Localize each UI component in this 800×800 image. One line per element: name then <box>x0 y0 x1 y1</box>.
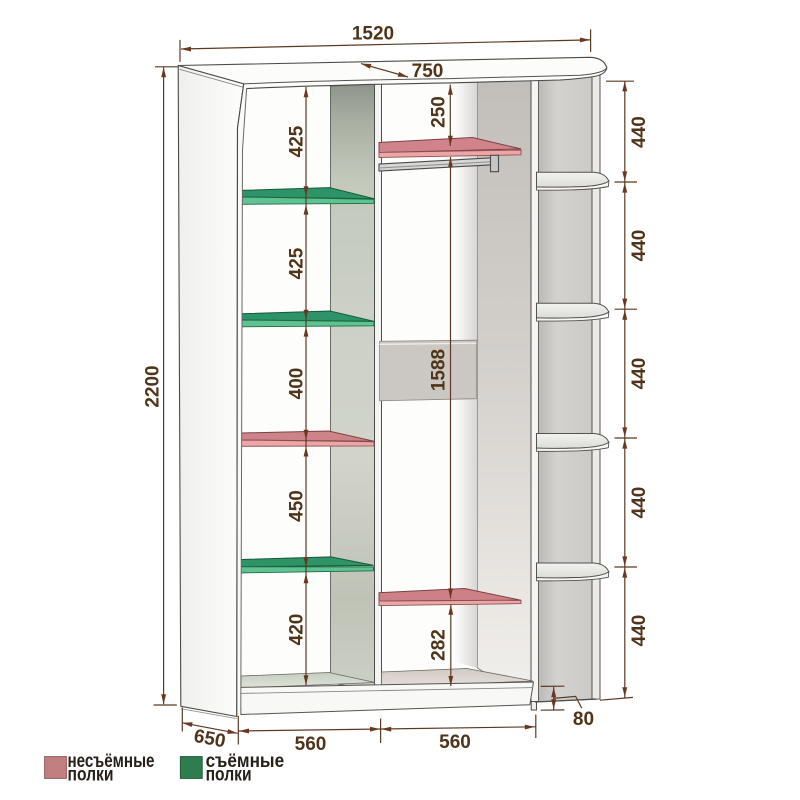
svg-text:282: 282 <box>429 629 450 661</box>
svg-text:1520: 1520 <box>352 24 394 45</box>
svg-text:2200: 2200 <box>143 365 164 407</box>
svg-text:80: 80 <box>573 709 594 730</box>
svg-text:560: 560 <box>439 732 471 753</box>
svg-text:425: 425 <box>287 247 308 279</box>
svg-text:450: 450 <box>287 490 308 522</box>
svg-text:полки: полки <box>68 765 114 786</box>
svg-text:420: 420 <box>287 614 308 646</box>
svg-text:440: 440 <box>629 487 650 519</box>
svg-text:1588: 1588 <box>429 349 450 391</box>
svg-text:400: 400 <box>287 368 308 400</box>
svg-text:440: 440 <box>629 116 650 148</box>
svg-text:750: 750 <box>412 61 444 82</box>
svg-text:250: 250 <box>428 96 449 128</box>
svg-text:560: 560 <box>295 734 327 755</box>
svg-text:440: 440 <box>629 358 650 390</box>
svg-text:425: 425 <box>287 125 308 157</box>
svg-text:440: 440 <box>629 615 650 647</box>
svg-text:440: 440 <box>629 230 650 262</box>
svg-text:полки: полки <box>206 765 252 786</box>
